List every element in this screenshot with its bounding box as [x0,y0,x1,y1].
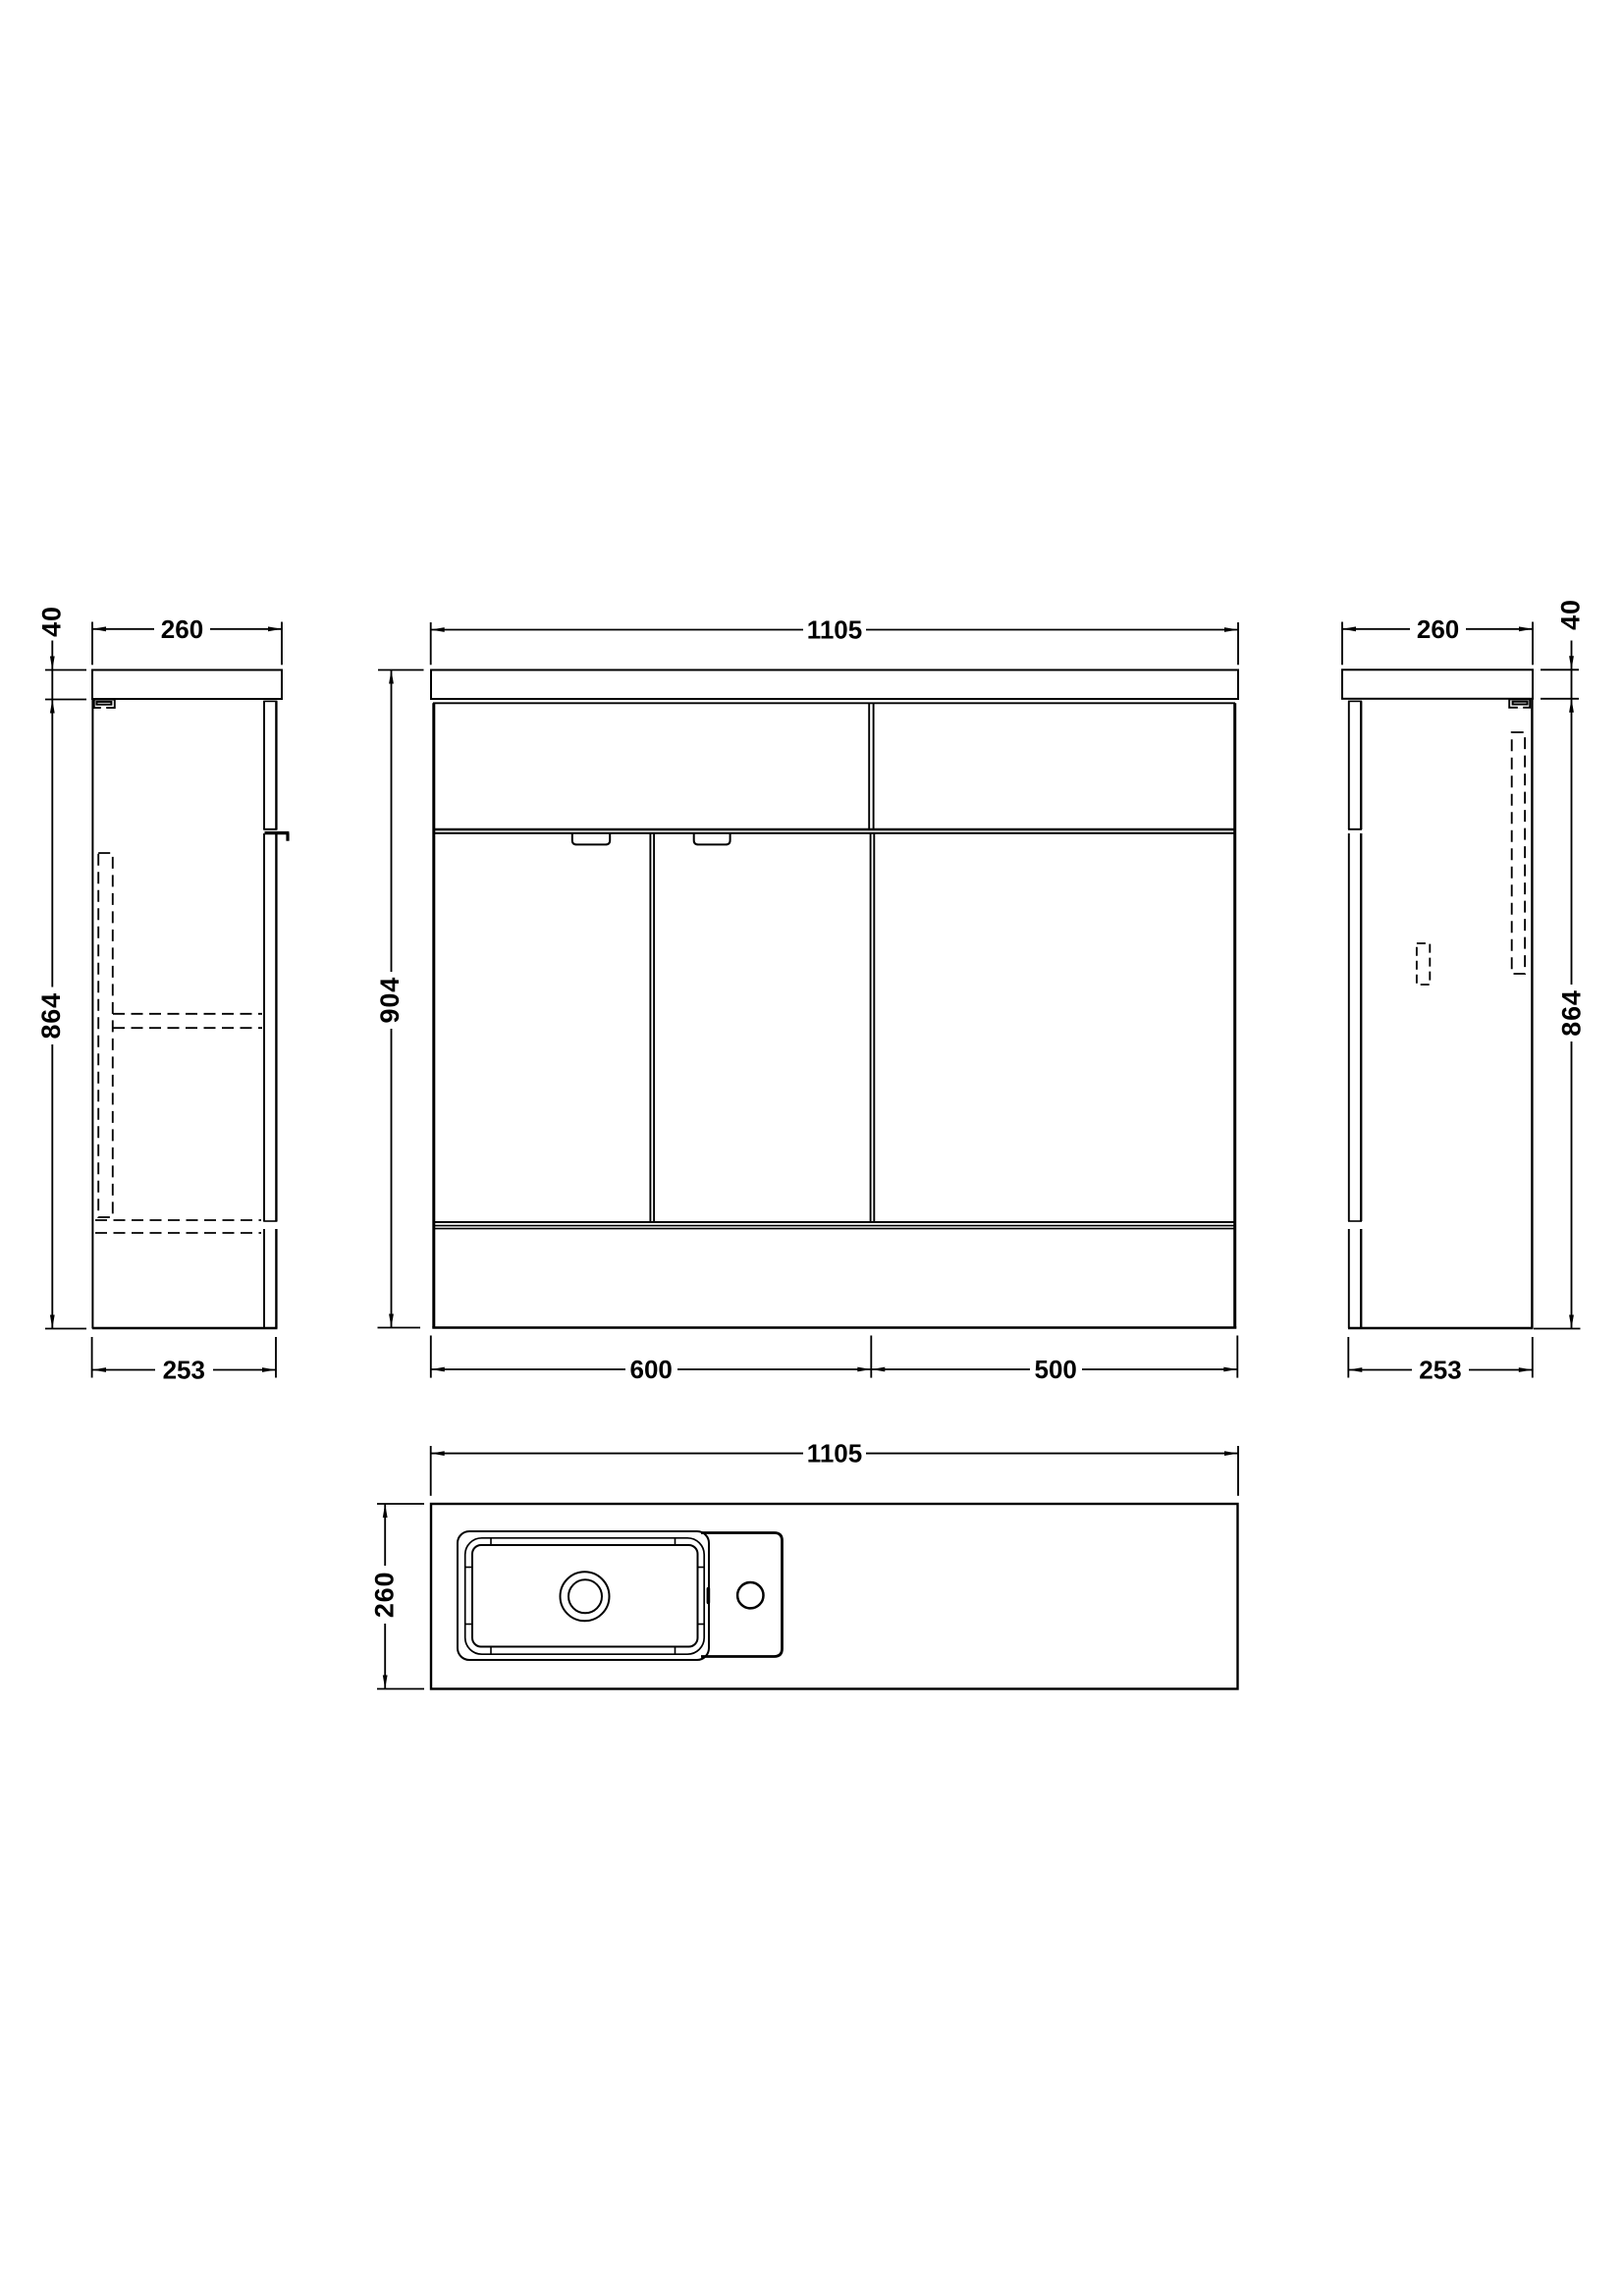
svg-text:600: 600 [630,1355,673,1384]
svg-text:864: 864 [36,992,66,1039]
svg-text:40: 40 [37,606,67,637]
svg-text:260: 260 [161,614,203,644]
svg-text:1105: 1105 [807,1439,862,1468]
svg-text:40: 40 [1556,599,1586,630]
svg-text:1105: 1105 [807,615,862,645]
svg-text:260: 260 [1417,614,1459,644]
svg-text:864: 864 [1556,989,1586,1036]
svg-text:253: 253 [163,1356,205,1385]
svg-text:904: 904 [375,977,405,1023]
svg-text:253: 253 [1419,1356,1461,1385]
svg-text:260: 260 [370,1572,400,1618]
svg-text:500: 500 [1035,1355,1077,1384]
